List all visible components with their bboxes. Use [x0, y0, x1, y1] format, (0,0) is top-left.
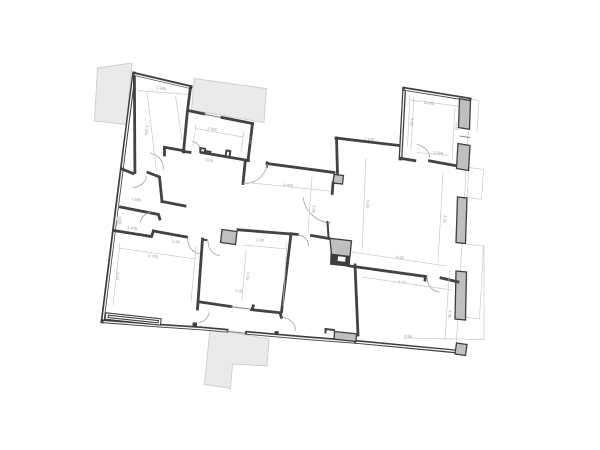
- svg-text:3.55: 3.55: [245, 272, 251, 281]
- svg-text:3.91: 3.91: [235, 288, 244, 294]
- svg-text:3.06: 3.06: [311, 205, 317, 214]
- svg-text:2.80: 2.80: [256, 237, 265, 243]
- svg-text:3.05: 3.05: [409, 118, 415, 127]
- svg-text:3.05: 3.05: [454, 122, 460, 131]
- svg-text:4.93: 4.93: [442, 215, 448, 224]
- svg-text:4.93: 4.93: [365, 200, 371, 209]
- svg-text:1.90: 1.90: [248, 136, 254, 145]
- svg-text:3.00: 3.00: [447, 310, 453, 319]
- svg-text:3.00: 3.00: [115, 272, 121, 281]
- svg-text:4.96: 4.96: [404, 333, 413, 339]
